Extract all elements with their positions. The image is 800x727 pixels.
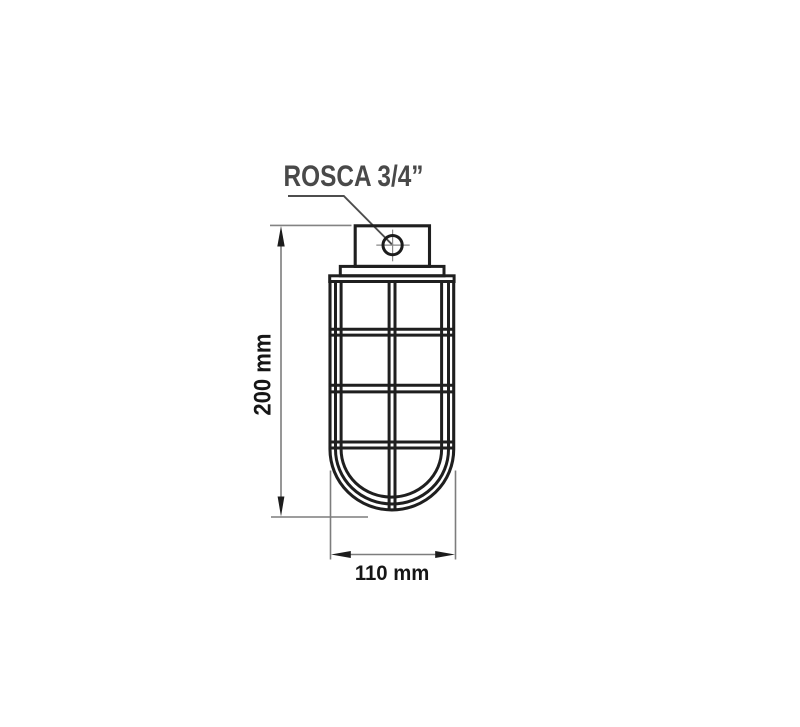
svg-text:110 mm: 110 mm xyxy=(355,561,430,585)
svg-text:200 mm: 200 mm xyxy=(249,334,276,416)
svg-text:ROSCA 3/4”: ROSCA 3/4” xyxy=(284,160,424,193)
